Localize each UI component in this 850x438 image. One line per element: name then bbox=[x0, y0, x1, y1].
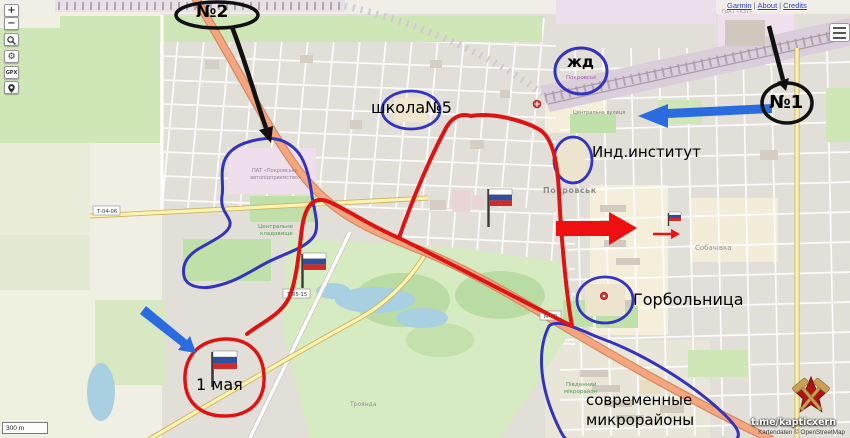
blue-circle-hospital bbox=[577, 277, 633, 323]
modern-districts-line1: современные bbox=[586, 393, 694, 409]
zoom-in-button[interactable]: + bbox=[4, 4, 19, 17]
modern-districts-line2: микрорайоны bbox=[586, 413, 694, 429]
menu-button[interactable] bbox=[829, 23, 850, 42]
route2-label: №2 bbox=[196, 4, 228, 22]
hamburger-icon bbox=[833, 37, 846, 39]
link-about[interactable]: About bbox=[758, 1, 778, 10]
link-garmin[interactable]: Garmin bbox=[727, 1, 752, 10]
hamburger-icon bbox=[833, 32, 846, 34]
link-separator: | bbox=[779, 1, 781, 10]
blue-arrow-southeast bbox=[140, 306, 196, 353]
institute-label: Инд.институт bbox=[592, 145, 701, 161]
link-separator: | bbox=[754, 1, 756, 10]
annotation-overlay bbox=[0, 0, 850, 438]
hospital-label: Горбольница bbox=[633, 292, 744, 309]
channel-logo bbox=[786, 373, 836, 423]
scale-bar: 300 m bbox=[2, 422, 48, 434]
locate-button[interactable] bbox=[4, 81, 19, 94]
blue-arrow-west bbox=[638, 104, 772, 128]
map-pin-icon bbox=[6, 83, 17, 94]
red-attack-arrow-large bbox=[556, 212, 637, 245]
red-attack-arrow-small bbox=[653, 229, 680, 239]
map-attribution: Kartendaten © OpenStreetMap bbox=[758, 429, 845, 436]
russian-flag-icon bbox=[489, 189, 513, 227]
school-label: школа№5 bbox=[371, 100, 452, 117]
link-credits[interactable]: Credits bbox=[783, 1, 807, 10]
search-button[interactable] bbox=[4, 33, 19, 46]
railway-label: жд bbox=[567, 55, 594, 71]
header-links: Garmin|About|Credits bbox=[727, 1, 807, 10]
search-icon bbox=[6, 35, 17, 46]
route1-label: №1 bbox=[769, 94, 803, 113]
map-canvas[interactable]: Покровськ Покровськ Центральна вулиця Со… bbox=[0, 0, 850, 438]
gear-icon: ⚙ bbox=[7, 52, 15, 62]
russian-flag-icon bbox=[303, 253, 327, 288]
gpx-button[interactable]: GPX bbox=[4, 66, 19, 79]
settings-button[interactable]: ⚙ bbox=[4, 50, 19, 63]
may-first-label: 1 мая bbox=[196, 377, 243, 394]
telegram-watermark: t.me/kapticxern bbox=[751, 417, 836, 428]
zoom-out-button[interactable]: − bbox=[4, 17, 19, 30]
black-route2-mark bbox=[176, 2, 273, 143]
modern-districts-label: современные микрорайоны bbox=[586, 393, 694, 429]
red-frontline-loop bbox=[399, 115, 572, 326]
russian-flag-icon bbox=[669, 212, 682, 226]
hamburger-icon bbox=[833, 27, 846, 29]
